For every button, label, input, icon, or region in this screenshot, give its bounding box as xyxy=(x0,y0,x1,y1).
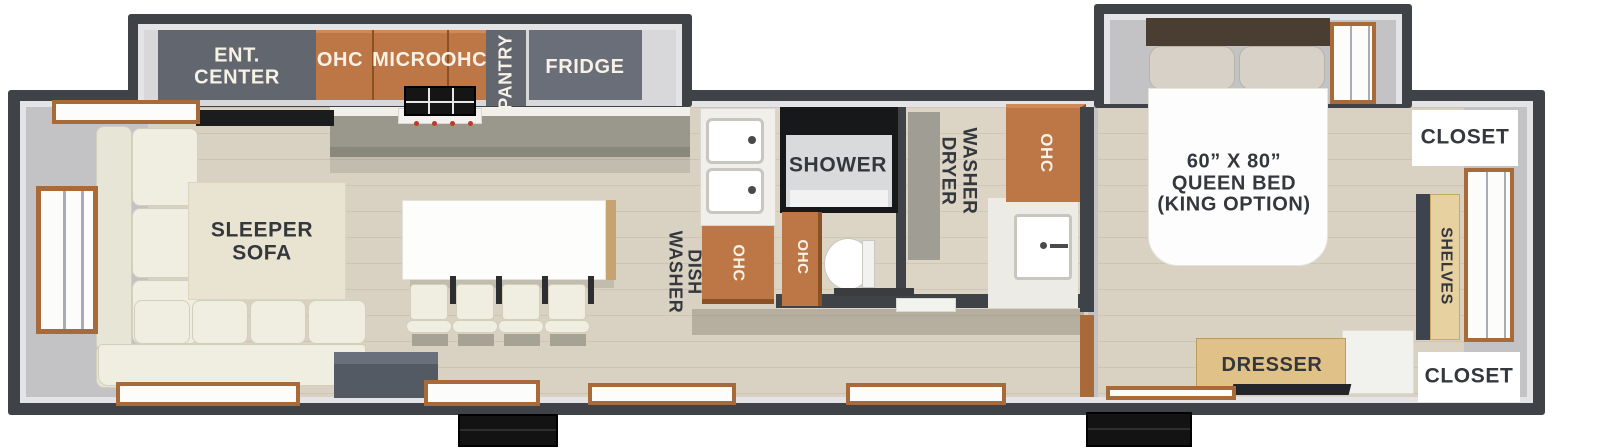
stool-seat xyxy=(498,320,544,333)
bathroom-door xyxy=(896,298,956,312)
side-table xyxy=(334,352,438,398)
bedroom-wall xyxy=(1080,107,1094,312)
sofa-back-cushion xyxy=(134,300,190,344)
window-bottom-b xyxy=(588,383,736,405)
micro-label: MICRO xyxy=(372,50,442,72)
faucet xyxy=(1040,242,1047,249)
ohc-utility-label: OHC xyxy=(1037,133,1055,173)
shower-label: SHOWER xyxy=(789,155,887,178)
kitchen-island xyxy=(402,200,606,280)
entry-steps-bedroom xyxy=(1086,412,1192,447)
ohc-left-label: OHC xyxy=(317,50,363,72)
pillow xyxy=(1239,46,1325,90)
headboard xyxy=(1146,18,1330,46)
burner-knob xyxy=(432,121,437,126)
burner-knob xyxy=(450,121,455,126)
window-bottom-a xyxy=(116,382,300,406)
faucet-handle xyxy=(1050,244,1068,248)
washer-dryer-label: WASHER DRYER xyxy=(937,128,978,215)
queen-bed-label: 60” X 80” QUEEN BED (KING OPTION) xyxy=(1157,152,1310,217)
stool-post xyxy=(588,276,594,304)
stool-seat xyxy=(452,320,498,333)
window-top-left xyxy=(52,100,200,124)
stool-seat xyxy=(544,320,590,333)
sofa-back xyxy=(96,126,132,352)
pantry-label: PANTRY xyxy=(496,34,515,110)
sofa-back-cushion xyxy=(250,300,306,344)
entry-steps-main xyxy=(458,414,558,447)
ent-center-label: ENT. CENTER xyxy=(194,45,280,88)
cooktop xyxy=(404,86,476,116)
island-wood-edge xyxy=(606,200,616,280)
stool-base xyxy=(504,334,540,346)
dresser-tray xyxy=(1231,384,1352,395)
sofa-back-cushion xyxy=(308,300,366,344)
kitchen-counter xyxy=(330,107,690,157)
closet-top-label: CLOSET xyxy=(1421,127,1510,150)
washer-dryer-unit xyxy=(908,112,940,260)
stool-base xyxy=(458,334,494,346)
dish-washer-label: DISH WASHER xyxy=(665,231,704,314)
ohc-sink-label: OHC xyxy=(729,244,746,281)
burner-knob xyxy=(414,121,419,126)
shelves-wall-band xyxy=(1416,194,1430,340)
window-bottom-c xyxy=(846,383,1006,405)
pillow xyxy=(1149,46,1235,90)
closet-bottom-label: CLOSET xyxy=(1425,366,1514,389)
sofa-seat xyxy=(98,344,366,386)
bar-stool xyxy=(502,284,540,320)
faucet xyxy=(748,186,756,194)
ohc-right-label: OHC xyxy=(441,50,487,72)
faucet xyxy=(748,136,756,144)
sleeper-sofa-label: SLEEPER SOFA xyxy=(211,219,313,264)
stool-base xyxy=(550,334,586,346)
bar-stool xyxy=(410,284,448,320)
hallway-shadow xyxy=(692,309,1084,335)
fridge-label: FRIDGE xyxy=(545,57,624,79)
kitchen-counter-shadow xyxy=(330,157,690,173)
sofa-back-cushion xyxy=(192,300,248,344)
stool-base xyxy=(412,334,448,346)
bar-stool xyxy=(456,284,494,320)
ohc-bath-label: OHC xyxy=(794,239,810,274)
window-left xyxy=(36,186,98,334)
bedroom-window xyxy=(1464,168,1514,342)
bedroom-door-frame xyxy=(1080,315,1094,397)
stool-seat xyxy=(406,320,452,333)
burner-knob xyxy=(468,121,473,126)
bar-stool xyxy=(548,284,586,320)
bedroom-bottom-sill xyxy=(1106,386,1236,400)
bath-counter xyxy=(834,288,914,296)
bedroom-slideout-window xyxy=(1330,22,1376,104)
toilet-tank xyxy=(862,240,875,288)
dresser-top xyxy=(1342,330,1414,394)
floor-plan: ENT. CENTER OHC MICRO OHC PANTRY FRIDGE … xyxy=(0,0,1600,448)
shelves-label: SHELVES xyxy=(1437,227,1454,305)
tv-slab xyxy=(196,110,334,126)
dresser-label: DRESSER xyxy=(1222,355,1323,377)
entry-door-main xyxy=(424,380,540,406)
shower-floor xyxy=(790,190,888,207)
